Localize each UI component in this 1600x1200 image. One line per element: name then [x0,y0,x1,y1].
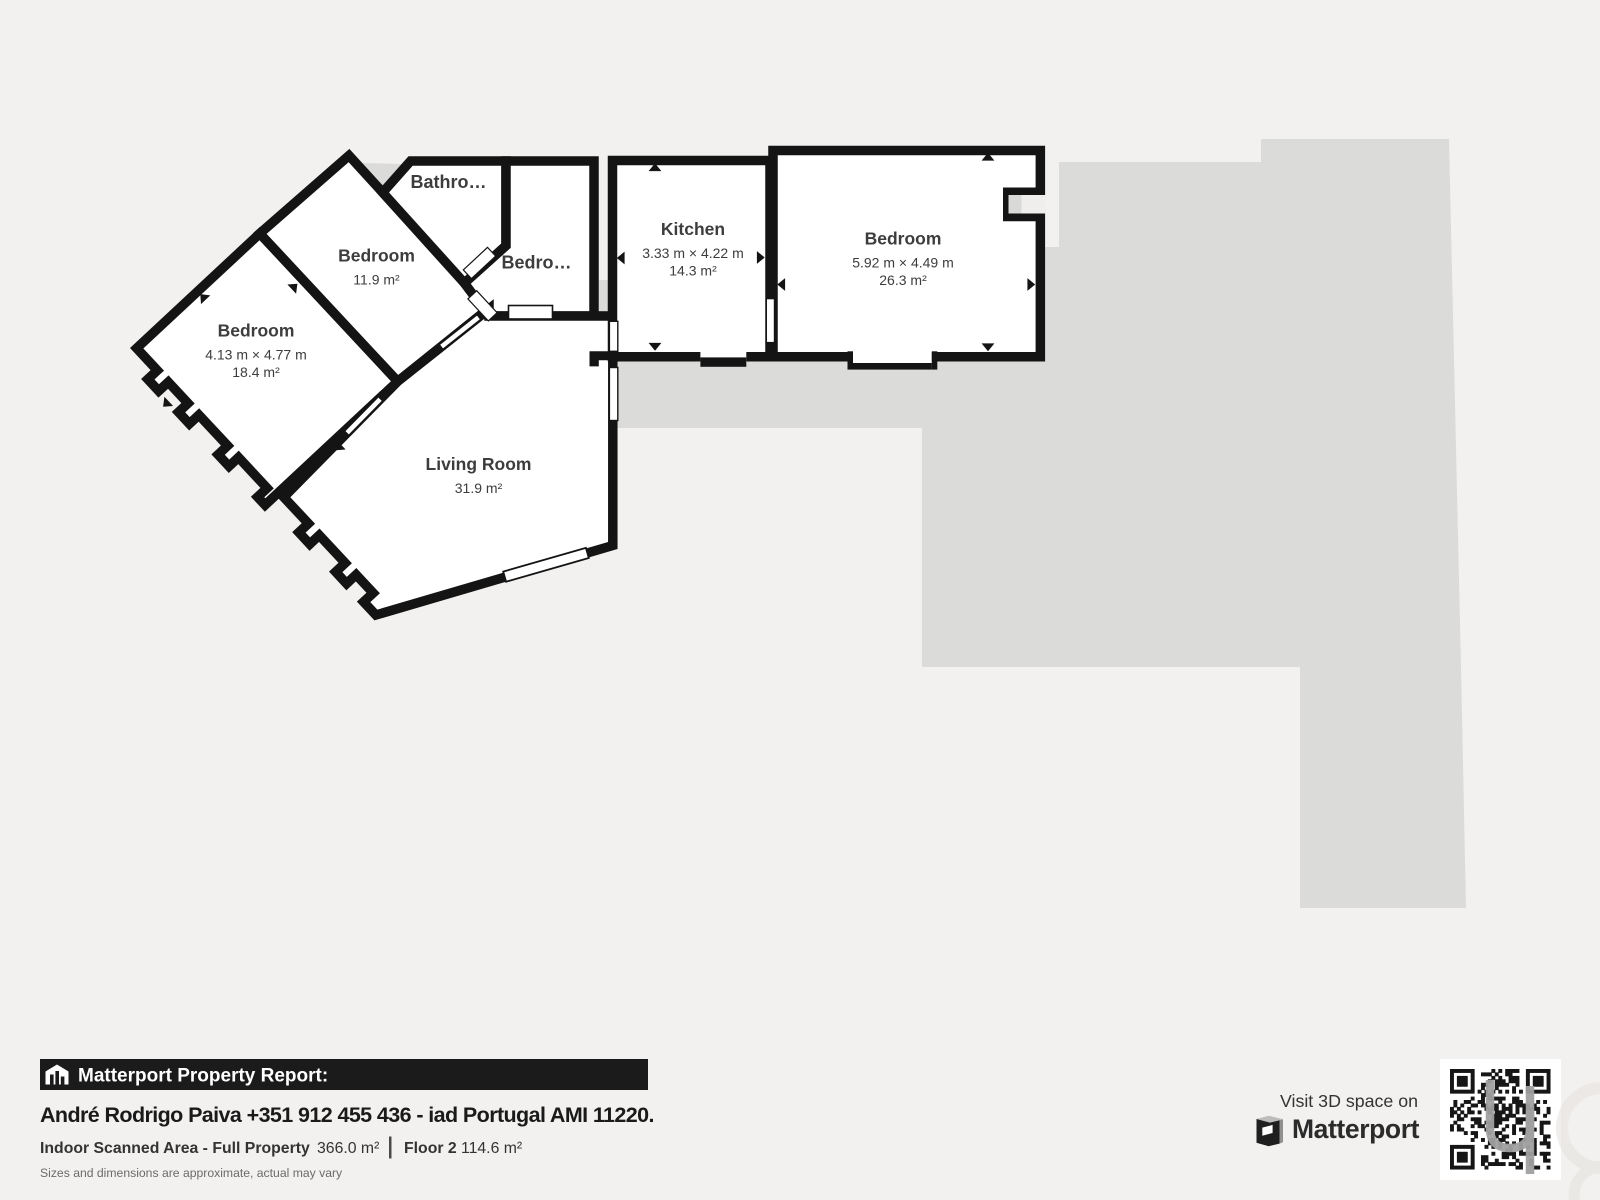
svg-text:11.9 m²: 11.9 m² [353,272,400,288]
svg-text:Matterport: Matterport [1292,1114,1420,1144]
svg-text:Bedroom: Bedroom [218,321,295,341]
svg-text:Living Room: Living Room [426,454,532,474]
svg-text:Bedro…: Bedro… [501,253,571,273]
svg-text:Bathro…: Bathro… [411,172,487,192]
svg-text:Bedroom: Bedroom [338,246,415,266]
svg-text:Sizes and dimensions are appro: Sizes and dimensions are approximate, ac… [40,1166,343,1180]
svg-text:Kitchen: Kitchen [661,219,725,239]
svg-text:26.3 m²: 26.3 m² [879,272,927,288]
svg-text:31.9 m²: 31.9 m² [455,480,503,496]
svg-text:Matterport Property Report:: Matterport Property Report: [78,1066,328,1087]
svg-text:4.13 m × 4.77 m: 4.13 m × 4.77 m [205,347,307,363]
svg-text:André Rodrigo Paiva +351 912 4: André Rodrigo Paiva +351 912 455 436 - i… [40,1103,654,1127]
svg-text:14.3 m²: 14.3 m² [669,263,717,279]
svg-text:5.92 m × 4.49 m: 5.92 m × 4.49 m [852,254,954,270]
svg-text:366.0 m²: 366.0 m² [317,1140,379,1157]
svg-text:Indoor Scanned Area - Full Pro: Indoor Scanned Area - Full Property [40,1140,310,1157]
svg-text:3.33 m × 4.22 m: 3.33 m × 4.22 m [642,245,744,261]
svg-text:114.6 m²: 114.6 m² [461,1140,522,1157]
svg-text:Visit 3D space on: Visit 3D space on [1280,1091,1418,1111]
svg-text:18.4 m²: 18.4 m² [232,364,280,380]
svg-text:Bedroom: Bedroom [865,228,942,248]
svg-text:Floor 2: Floor 2 [404,1140,457,1157]
